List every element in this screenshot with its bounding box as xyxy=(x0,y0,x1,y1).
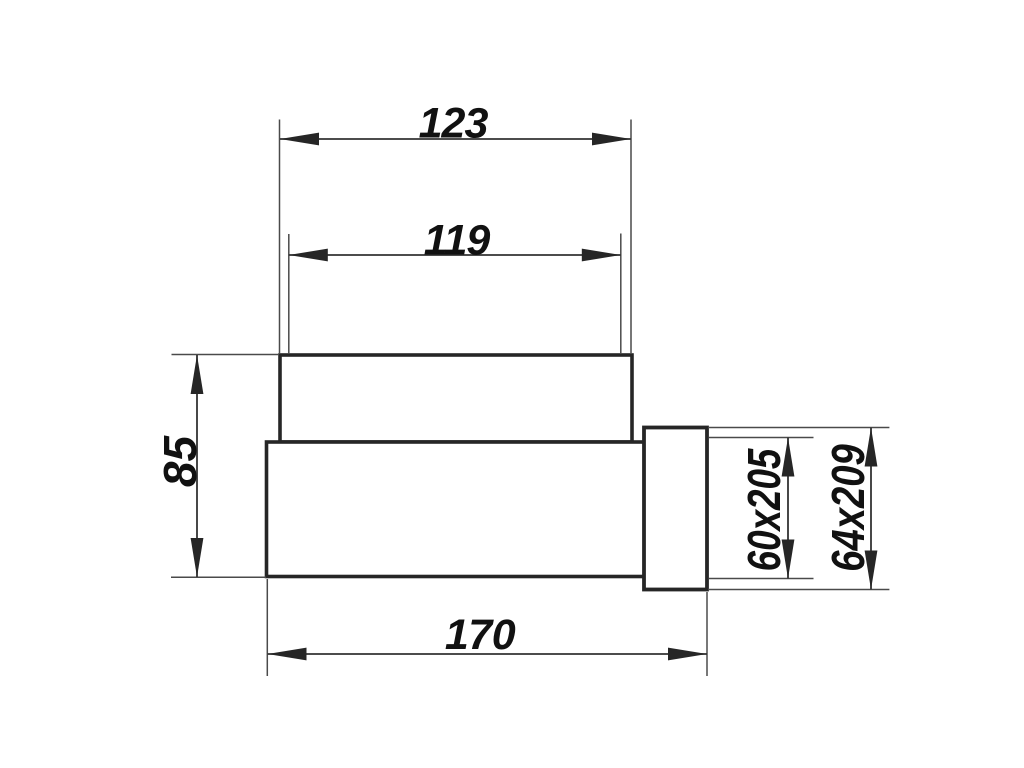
svg-text:119: 119 xyxy=(424,217,491,265)
svg-text:85: 85 xyxy=(154,435,206,488)
svg-text:60x205: 60x205 xyxy=(738,448,790,572)
svg-text:170: 170 xyxy=(445,611,516,659)
svg-text:64x209: 64x209 xyxy=(823,444,874,572)
svg-text:123: 123 xyxy=(419,100,489,148)
